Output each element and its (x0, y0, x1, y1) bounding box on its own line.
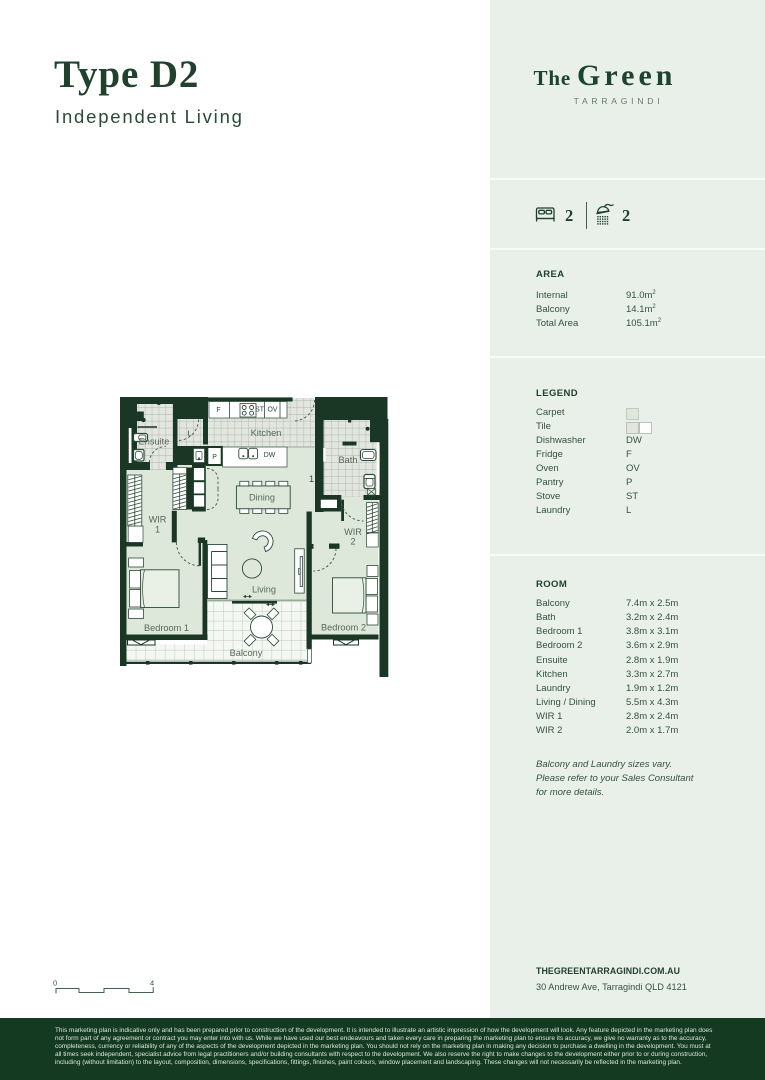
svg-text:Bedroom 1: Bedroom 1 (144, 623, 189, 633)
svg-text:1: 1 (309, 474, 314, 485)
svg-text:Dining: Dining (249, 493, 275, 503)
svg-text:2: 2 (350, 537, 355, 547)
svg-text:L: L (187, 429, 191, 438)
svg-text:F: F (216, 407, 220, 414)
svg-text:P: P (212, 454, 217, 461)
svg-text:Bath: Bath (339, 455, 358, 465)
svg-text:Ensuite: Ensuite (139, 437, 170, 447)
svg-text:WIR: WIR (344, 527, 362, 537)
svg-text:Kitchen: Kitchen (251, 428, 282, 438)
svg-text:Bedroom 2: Bedroom 2 (321, 623, 366, 633)
svg-text:Living: Living (252, 585, 276, 595)
svg-text:WIR: WIR (149, 515, 167, 525)
svg-text:ST: ST (255, 407, 265, 414)
svg-text:2: 2 (565, 206, 573, 225)
svg-text:OV: OV (268, 407, 278, 414)
svg-text:2: 2 (622, 206, 630, 225)
svg-text:DW: DW (264, 452, 276, 459)
svg-text:1: 1 (155, 525, 160, 535)
svg-text:Balcony: Balcony (230, 648, 263, 658)
